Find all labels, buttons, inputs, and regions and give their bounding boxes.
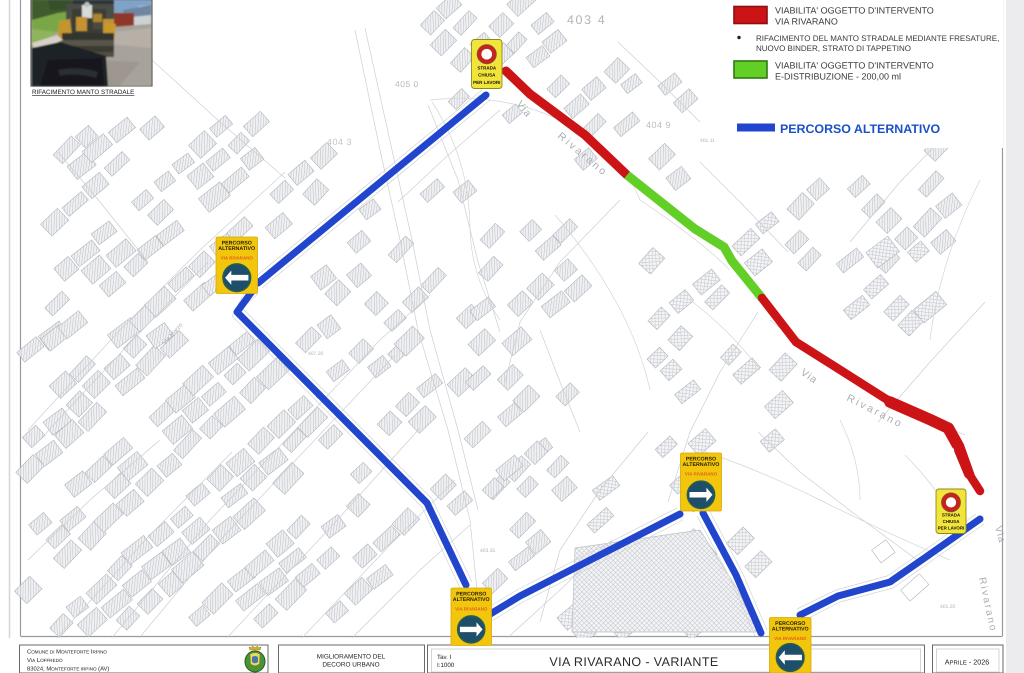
svg-text:404 3: 404 3 (327, 137, 352, 147)
svg-text:Tav. I: Tav. I (437, 654, 452, 661)
svg-text:VIABILITA' OGGETTO D'INTERVENT: VIABILITA' OGGETTO D'INTERVENTO (775, 6, 934, 16)
svg-text:ALTERNATIVO: ALTERNATIVO (772, 627, 809, 633)
svg-text:401.11: 401.11 (700, 138, 715, 144)
svg-text:STRADA: STRADA (477, 66, 496, 71)
svg-text:407.20: 407.20 (308, 351, 324, 357)
svg-text:403 4: 403 4 (567, 13, 606, 27)
svg-text:I:1000: I:1000 (437, 662, 455, 669)
svg-text:PER LAVORI: PER LAVORI (938, 525, 965, 530)
svg-text:RIFACIMENTO MANTO STRADALE: RIFACIMENTO MANTO STRADALE (32, 89, 134, 96)
svg-text:MIGLIORAMENTO DEL: MIGLIORAMENTO DEL (317, 654, 386, 661)
svg-text:VIA RIVARANO - VARIANTE: VIA RIVARANO - VARIANTE (549, 655, 718, 669)
svg-text:DECORO URBANO: DECORO URBANO (322, 662, 379, 669)
svg-text:VIA RIVARANO: VIA RIVARANO (455, 606, 488, 611)
svg-text:403.35: 403.35 (480, 548, 496, 554)
svg-text:VIABILITA' OGGETTO D'INTERVENT: VIABILITA' OGGETTO D'INTERVENTO (775, 61, 934, 71)
svg-text:STRADA: STRADA (942, 512, 961, 517)
svg-text:PERCORSO ALTERNATIVO: PERCORSO ALTERNATIVO (780, 122, 941, 136)
svg-text:COMUNE DI MONTEFORTE IRPINO: COMUNE DI MONTEFORTE IRPINO (27, 649, 107, 656)
svg-text:CHIUSA: CHIUSA (478, 73, 496, 78)
svg-text:VIA RIVARANO: VIA RIVARANO (685, 471, 718, 476)
svg-text:VIA RIVARANO: VIA RIVARANO (221, 255, 254, 260)
svg-text:NUOVO BINDER, STRATO DI TAPPET: NUOVO BINDER, STRATO DI TAPPETINO (756, 44, 911, 53)
svg-text:VIA RIVARANO: VIA RIVARANO (774, 636, 807, 641)
svg-text:E-DISTRIBUZIONE - 200,00 ml: E-DISTRIBUZIONE - 200,00 ml (775, 72, 901, 82)
svg-text:ALTERNATIVO: ALTERNATIVO (683, 462, 720, 468)
svg-text:RIFACIMENTO DEL MANTO STRADALE: RIFACIMENTO DEL MANTO STRADALE MEDIANTE … (756, 34, 999, 43)
svg-text:ALTERNATIVO: ALTERNATIVO (218, 246, 255, 252)
svg-text:404 9: 404 9 (646, 120, 671, 130)
svg-text:PER LAVORI: PER LAVORI (473, 80, 500, 85)
svg-text:405 0: 405 0 (395, 79, 419, 89)
svg-text:ALTERNATIVO: ALTERNATIVO (453, 597, 490, 603)
svg-text:401.20: 401.20 (940, 604, 956, 610)
svg-text:VIA RIVARANO: VIA RIVARANO (775, 17, 838, 27)
svg-text:CHIUSA: CHIUSA (943, 519, 961, 524)
svg-text:83024, MONTEFORTE IRPINO (AV): 83024, MONTEFORTE IRPINO (AV) (27, 666, 109, 673)
